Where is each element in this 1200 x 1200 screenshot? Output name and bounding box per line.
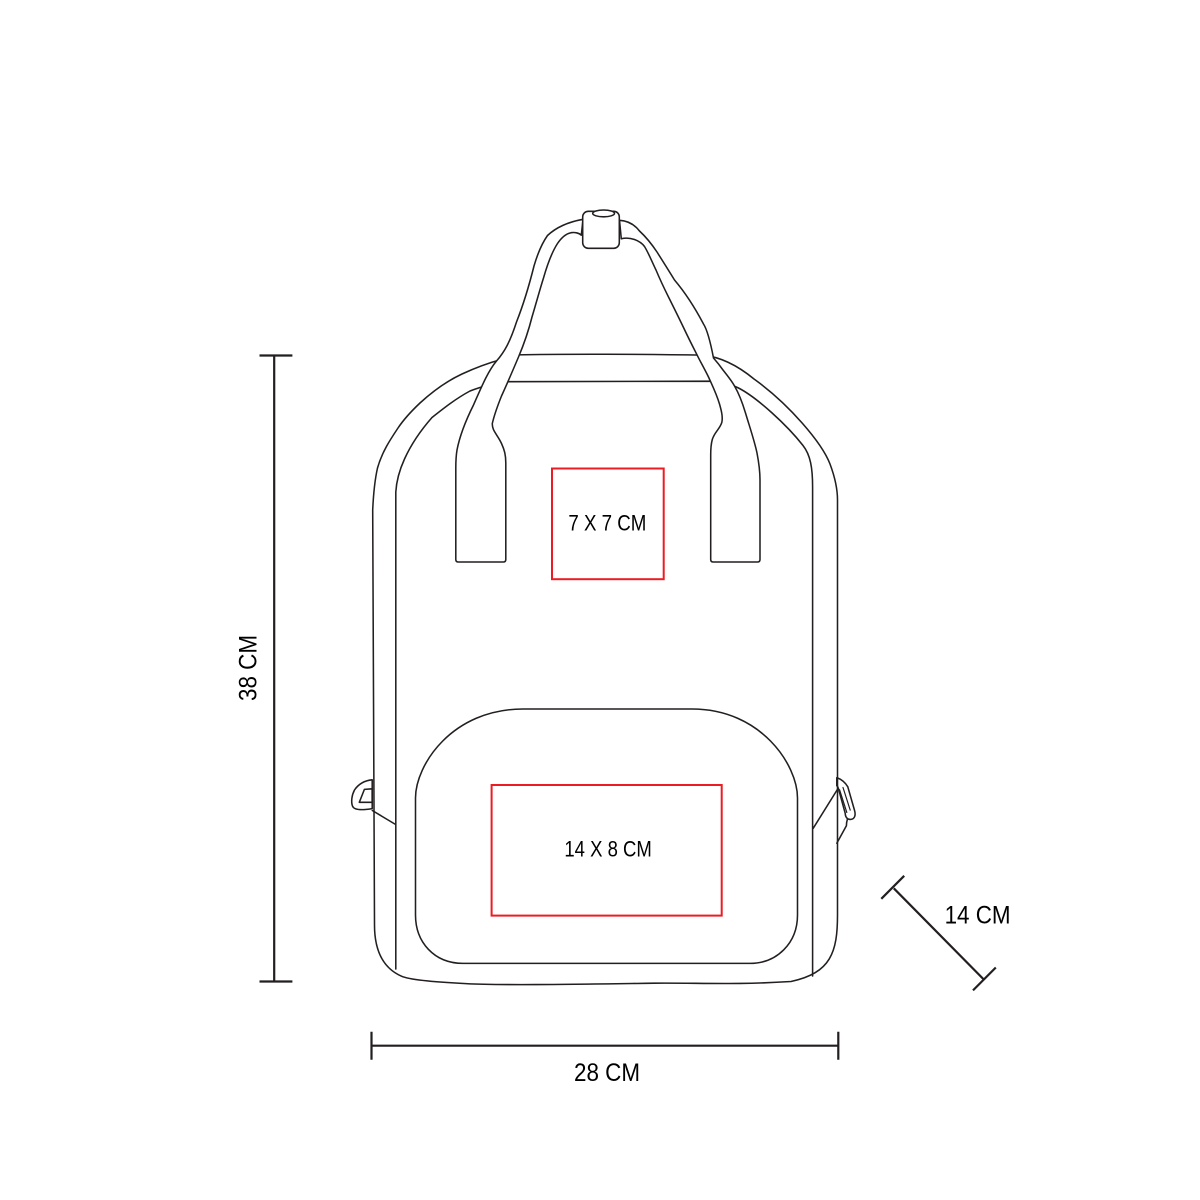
svg-text:14 CM: 14 CM bbox=[945, 902, 1011, 930]
svg-text:38 CM: 38 CM bbox=[235, 635, 263, 701]
svg-text:7 X 7 CM: 7 X 7 CM bbox=[568, 510, 646, 535]
svg-text:28 CM: 28 CM bbox=[574, 1059, 640, 1087]
svg-text:14 X 8 CM: 14 X 8 CM bbox=[564, 836, 652, 861]
